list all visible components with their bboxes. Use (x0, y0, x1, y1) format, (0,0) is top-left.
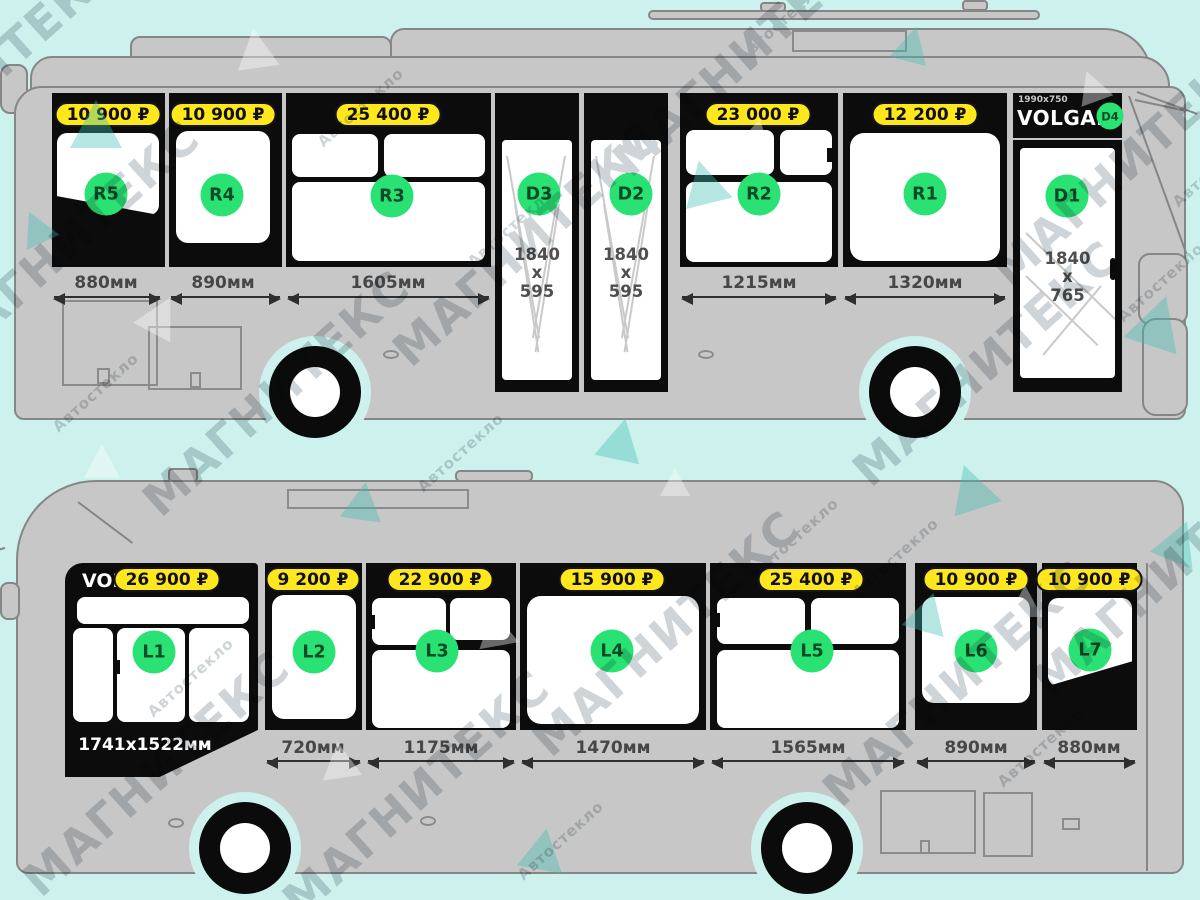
dim-arrow-l6 (917, 760, 1035, 762)
tag-l7: L7 (1069, 629, 1112, 672)
wheel-hub (290, 367, 340, 417)
logo-triangle (84, 444, 120, 478)
bus1-front-step (1138, 253, 1188, 325)
dim-label-r4: 890мм (191, 273, 254, 293)
bus1-service-hatch (62, 300, 158, 386)
vent-notch (827, 148, 833, 162)
bus1-filler-cap (383, 350, 399, 359)
window-l1-left (73, 628, 113, 722)
wheel-hub (220, 823, 270, 873)
bus2-rear-step (1062, 818, 1080, 830)
price-badge-r3: 25 400 ₽ (335, 102, 442, 127)
tag-l1: L1 (133, 631, 176, 674)
price-badge-r4: 10 900 ₽ (170, 102, 277, 127)
bus1-hatch-latch (97, 368, 110, 384)
price-badge-l7: 10 900 ₽ (1036, 567, 1143, 592)
dim-label-l6: 890мм (944, 738, 1007, 758)
dim-label-l4: 1470мм (575, 738, 650, 758)
tag-l3: L3 (416, 630, 459, 673)
vent-notch (714, 613, 720, 627)
tag-d2: D2 (610, 173, 653, 216)
wheel-hub (890, 367, 940, 417)
dim-arrow-l5 (712, 760, 904, 762)
dim-arrow-l2 (267, 760, 360, 762)
tag-r2: R2 (738, 173, 781, 216)
dim-arrow-l4 (522, 760, 704, 762)
bus1-filler-cap (698, 350, 714, 359)
dim-arrow-r2 (682, 296, 836, 298)
vent-notch (114, 660, 120, 674)
tag-l5: L5 (791, 630, 834, 673)
price-badge-l1: 26 900 ₽ (114, 567, 221, 592)
bus1-roof-rail (648, 10, 1040, 20)
door-panel-d2 (584, 93, 668, 392)
tag-l6: L6 (955, 630, 998, 673)
tag-r1: R1 (904, 173, 947, 216)
bus1-roof-hatch (792, 30, 907, 52)
price-badge-l5: 25 400 ₽ (758, 567, 865, 592)
bus1-roof-mount (962, 0, 988, 11)
price-badge-r5: 10 900 ₽ (55, 102, 162, 127)
tag-d4: D4 (1097, 103, 1124, 130)
logo-triangle (594, 414, 648, 465)
tag-r5: R5 (85, 173, 128, 216)
door-size-d2: 1840 x 595 (584, 246, 668, 301)
bus2-hatch-latch (920, 840, 930, 854)
price-badge-l4: 15 900 ₽ (559, 567, 666, 592)
dim-label-r1: 1320мм (887, 273, 962, 293)
window-r2-top-right (780, 130, 832, 175)
price-badge-l2: 9 200 ₽ (266, 567, 361, 592)
price-badge-r1: 12 200 ₽ (872, 102, 979, 127)
price-badge-l3: 22 900 ₽ (387, 567, 494, 592)
tag-r3: R3 (371, 175, 414, 218)
tag-l4: L4 (591, 630, 634, 673)
bus2-front-cap (0, 582, 20, 620)
price-badge-r2: 23 000 ₽ (705, 102, 812, 127)
window-r3-top-left (292, 134, 378, 177)
tag-d1: D1 (1046, 175, 1089, 218)
dim-label-l3: 1175мм (403, 738, 478, 758)
door-size-d3: 1840 x 595 (495, 246, 579, 301)
dim-arrow-r1 (845, 296, 1005, 298)
window-r2-top-left (686, 130, 774, 175)
bus-glazing-diagram: 10 900 ₽ R5 880мм 10 900 ₽ R4 890мм 25 4… (0, 0, 1200, 900)
dim-arrow-l7 (1044, 760, 1135, 762)
bus2-roof-hatch (287, 489, 469, 509)
dim-arrow-r4 (171, 296, 280, 298)
window-l1-top (77, 597, 249, 624)
dim-label-r3: 1605мм (350, 273, 425, 293)
tag-l2: L2 (293, 631, 336, 674)
d1-header: 1990x750 VOLGAB D4 (1013, 93, 1122, 138)
wheel-hub (782, 823, 832, 873)
dim-label-r2: 1215мм (721, 273, 796, 293)
window-r3-top-right (384, 134, 485, 177)
window-l5-top-left (717, 598, 805, 644)
bus2-service-hatch (983, 792, 1033, 857)
dim-label-l7: 880мм (1057, 738, 1120, 758)
bus1-hatch-latch (190, 372, 201, 388)
bus2-filler-cap (420, 816, 436, 826)
l1-size: 1741x1522мм (65, 735, 225, 755)
dim-label-l2: 720мм (281, 738, 344, 758)
bus1-front-bumper (1142, 318, 1188, 416)
dim-label-r5: 880мм (74, 273, 137, 293)
bus2-filler-cap (168, 818, 184, 828)
bus2-mirror-arm (0, 547, 5, 560)
window-l3-top-right (450, 598, 510, 640)
vent-notch (369, 615, 375, 629)
bus2-rear-seam (1146, 563, 1148, 871)
window-l1-right (189, 628, 249, 722)
d1-header-size: 1990x750 (1018, 95, 1068, 105)
tag-r4: R4 (201, 174, 244, 217)
bus1-roof-mount (760, 2, 786, 12)
dim-arrow-l3 (368, 760, 514, 762)
dim-arrow-r3 (288, 296, 489, 298)
dim-label-l5: 1565мм (770, 738, 845, 758)
door-size-d1: 1840 x 765 (1013, 250, 1122, 305)
price-badge-l6: 10 900 ₽ (923, 567, 1030, 592)
door-panel-d3 (495, 93, 579, 392)
tag-d3: D3 (518, 173, 561, 216)
dim-arrow-r5 (54, 296, 160, 298)
